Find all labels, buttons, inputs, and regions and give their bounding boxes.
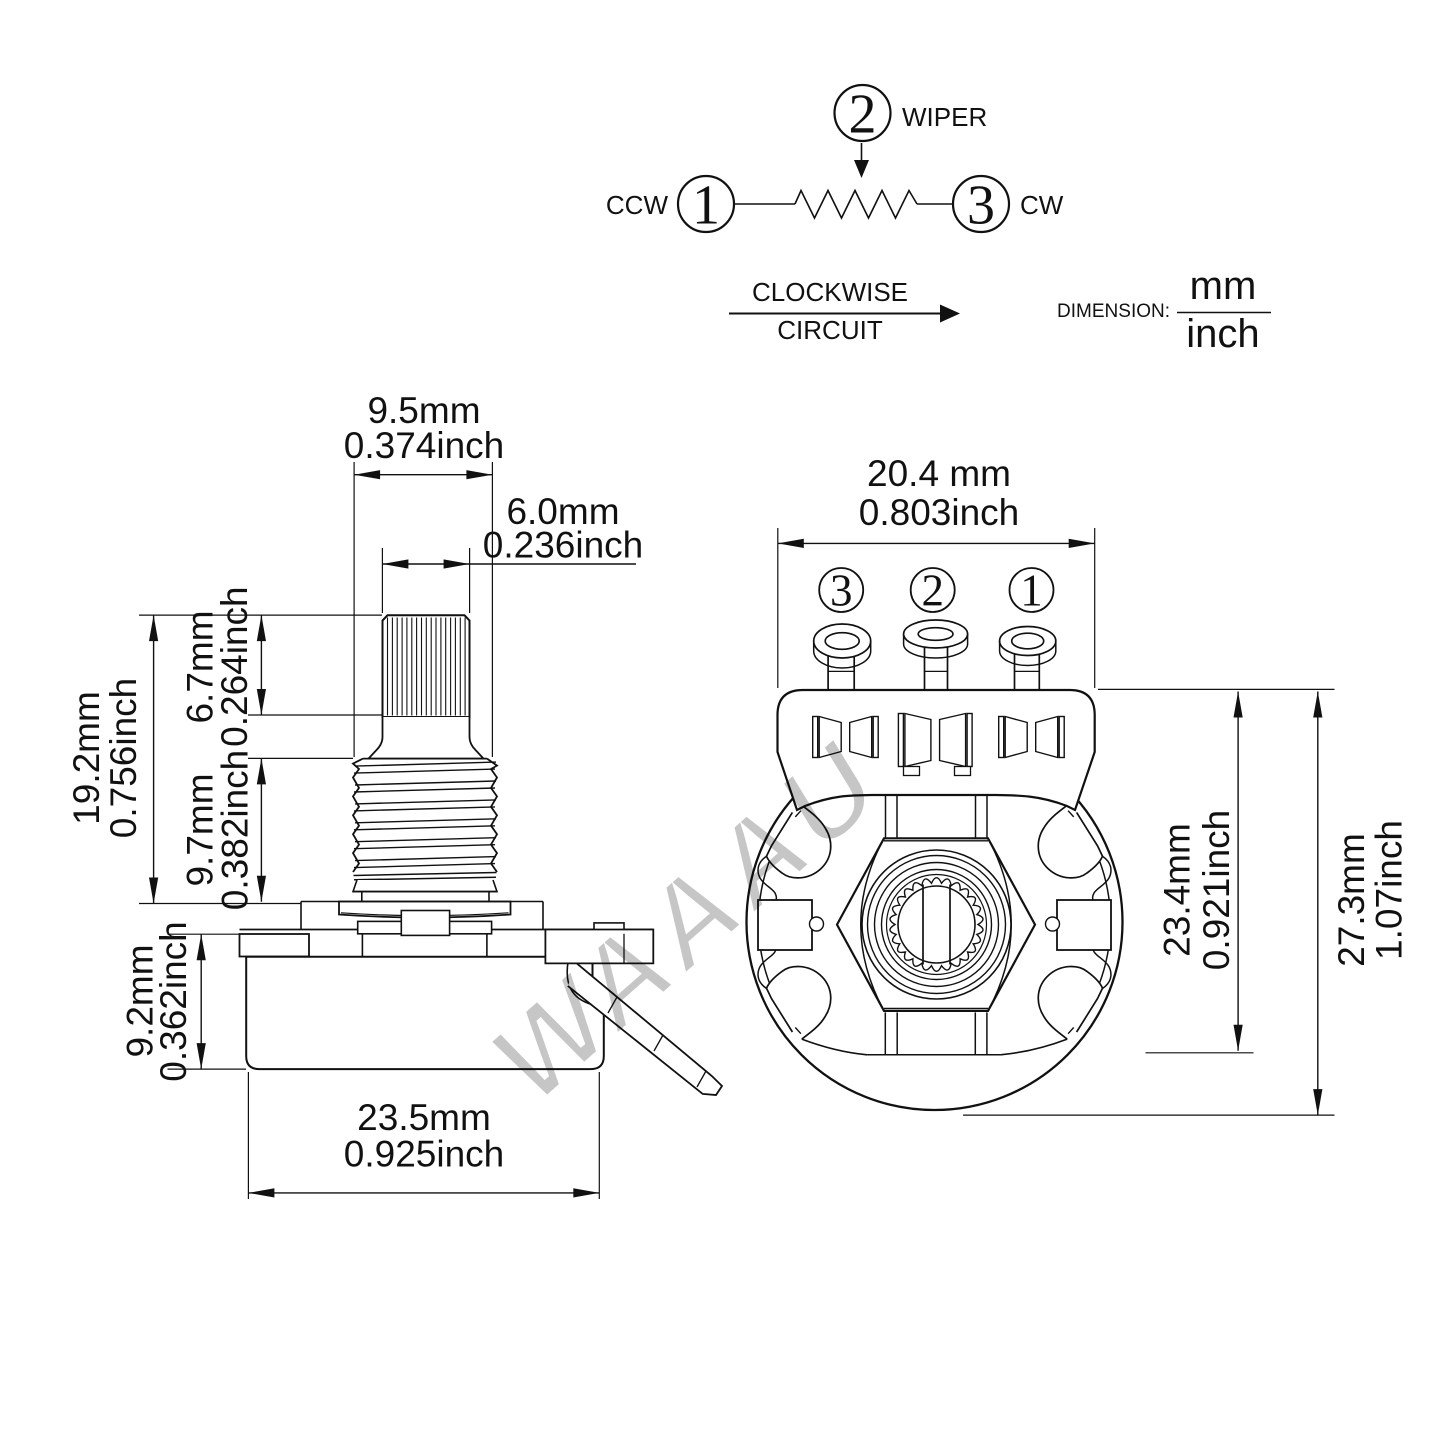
svg-text:0.236inch: 0.236inch xyxy=(483,525,643,566)
svg-text:WIPER: WIPER xyxy=(902,102,987,132)
svg-text:19.2mm: 19.2mm xyxy=(66,691,107,825)
svg-text:CLOCKWISE: CLOCKWISE xyxy=(752,277,908,307)
svg-text:CW: CW xyxy=(1020,190,1064,220)
svg-text:inch: inch xyxy=(1186,312,1259,356)
svg-text:3: 3 xyxy=(967,174,995,236)
svg-text:0.382inch: 0.382inch xyxy=(215,750,256,910)
svg-text:0.756inch: 0.756inch xyxy=(103,678,144,838)
svg-text:1.07inch: 1.07inch xyxy=(1368,820,1409,960)
svg-text:CIRCUIT: CIRCUIT xyxy=(777,315,883,345)
svg-text:0.374inch: 0.374inch xyxy=(344,425,504,466)
svg-text:2: 2 xyxy=(849,83,877,145)
svg-text:20.4 mm: 20.4 mm xyxy=(867,453,1011,494)
svg-text:3: 3 xyxy=(830,566,853,616)
svg-text:0.362inch: 0.362inch xyxy=(153,921,194,1081)
svg-text:2: 2 xyxy=(921,566,944,616)
svg-text:DIMENSION:: DIMENSION: xyxy=(1057,301,1170,322)
svg-text:1: 1 xyxy=(1020,566,1043,616)
svg-text:0.264inch: 0.264inch xyxy=(214,586,255,746)
svg-text:CCW: CCW xyxy=(606,190,669,220)
svg-text:23.4mm: 23.4mm xyxy=(1157,823,1198,957)
svg-text:1: 1 xyxy=(692,174,720,236)
svg-text:0.803inch: 0.803inch xyxy=(859,492,1019,533)
svg-text:0.921inch: 0.921inch xyxy=(1196,810,1237,970)
svg-text:27.3mm: 27.3mm xyxy=(1331,833,1372,967)
svg-text:23.5mm: 23.5mm xyxy=(357,1097,491,1138)
svg-text:mm: mm xyxy=(1190,264,1257,308)
svg-text:0.925inch: 0.925inch xyxy=(344,1134,504,1175)
